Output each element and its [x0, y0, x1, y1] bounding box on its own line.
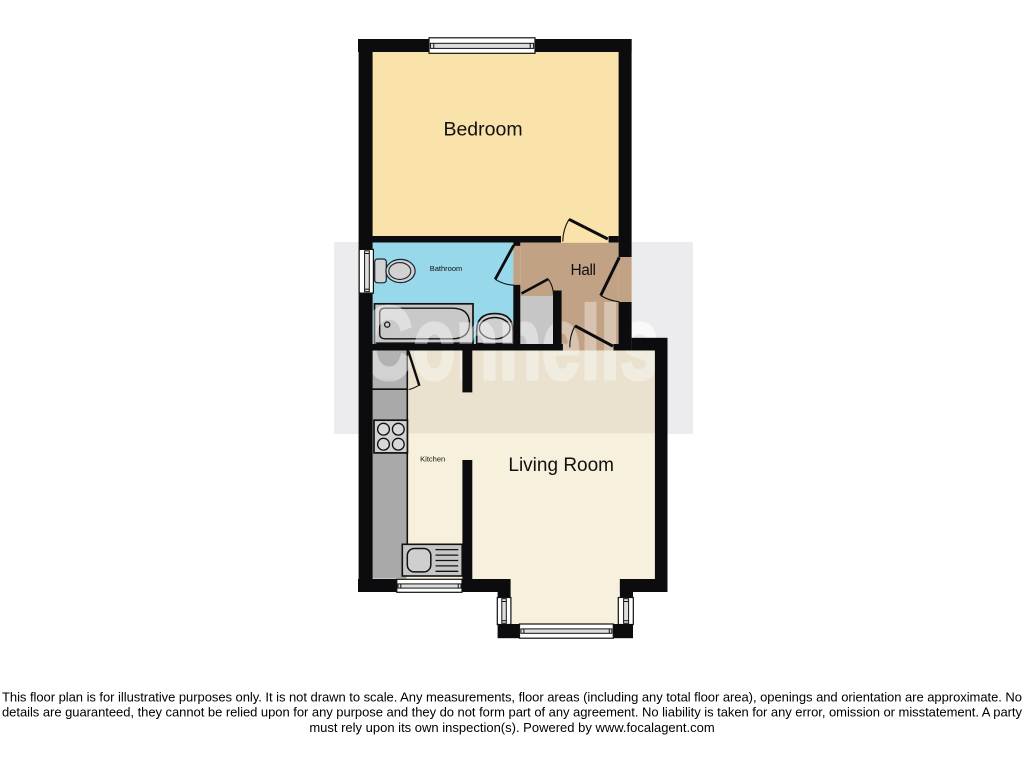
- svg-text:Bathroom: Bathroom: [430, 264, 463, 273]
- svg-text:Hall: Hall: [570, 262, 595, 279]
- svg-text:This floor plan is for illustr: This floor plan is for illustrative purp…: [2, 690, 1022, 705]
- svg-text:Living Room: Living Room: [508, 455, 614, 476]
- svg-text:details are guaranteed, they c: details are guaranteed, they cannot be r…: [2, 705, 1023, 720]
- svg-text:Kitchen: Kitchen: [420, 455, 445, 464]
- svg-text:Bedroom: Bedroom: [443, 119, 522, 141]
- svg-text:must rely upon its own inspect: must rely upon its own inspection(s). Po…: [309, 720, 714, 735]
